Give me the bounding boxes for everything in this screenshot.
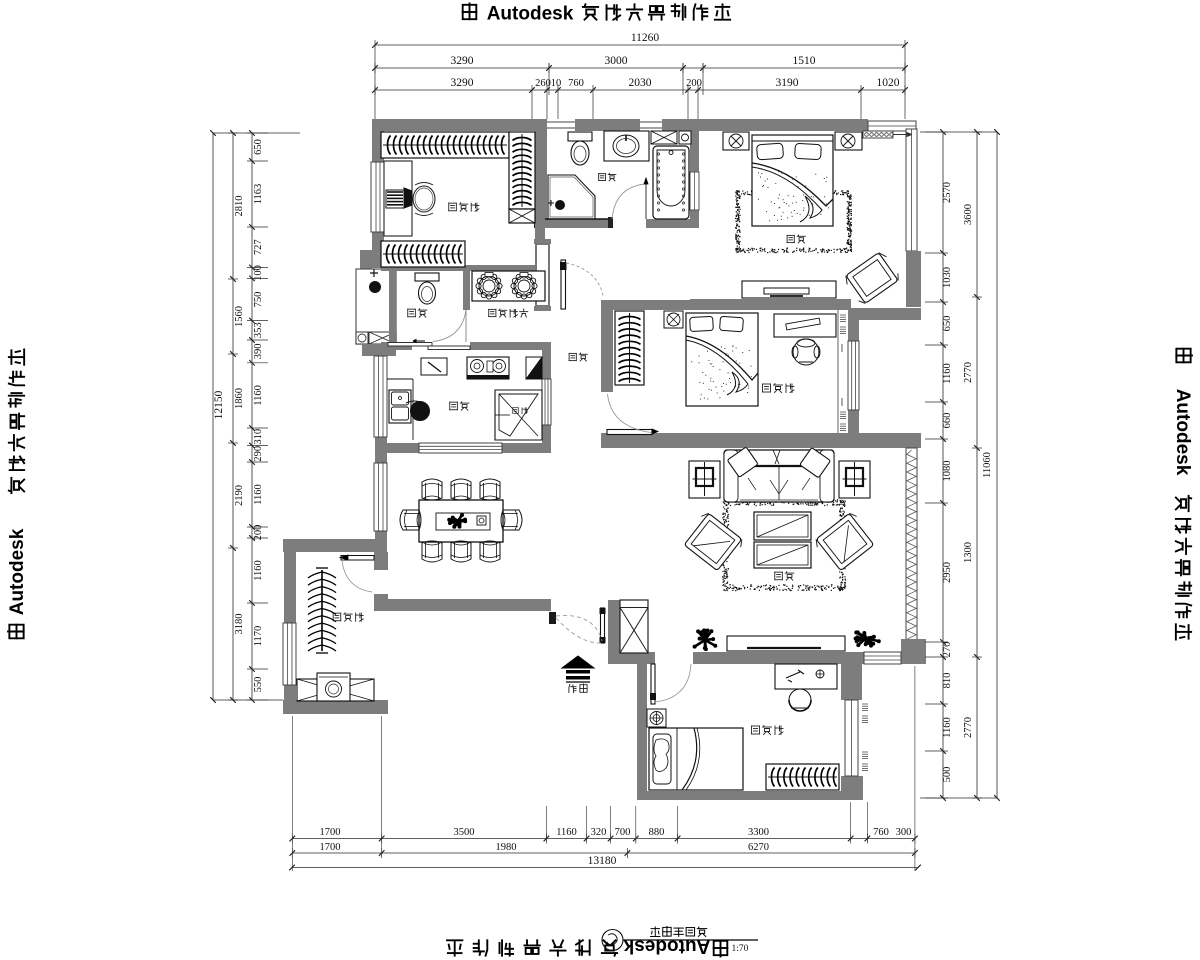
svg-text:6270: 6270 xyxy=(748,842,769,853)
svg-text:760: 760 xyxy=(873,827,889,838)
svg-text:2810: 2810 xyxy=(234,196,245,217)
svg-text:760: 760 xyxy=(568,78,584,89)
svg-text:200: 200 xyxy=(686,78,702,89)
svg-text:1163: 1163 xyxy=(253,184,264,205)
svg-text:3290: 3290 xyxy=(451,55,474,67)
svg-text:650: 650 xyxy=(942,316,953,332)
svg-text:3180: 3180 xyxy=(234,614,245,635)
svg-text:1030: 1030 xyxy=(942,267,953,288)
svg-text:1160: 1160 xyxy=(556,827,577,838)
svg-text:810: 810 xyxy=(942,673,953,689)
svg-text:Autodesk: Autodesk xyxy=(487,4,574,25)
svg-text:2570: 2570 xyxy=(942,182,953,203)
svg-text:1560: 1560 xyxy=(234,306,245,327)
svg-text:3500: 3500 xyxy=(454,827,475,838)
svg-text:390: 390 xyxy=(253,344,264,360)
svg-text:310: 310 xyxy=(253,429,264,445)
svg-text:Autodesk: Autodesk xyxy=(623,936,710,957)
svg-text:13180: 13180 xyxy=(588,855,617,867)
svg-text:1510: 1510 xyxy=(793,55,816,67)
svg-text:100: 100 xyxy=(253,265,264,281)
svg-text:270: 270 xyxy=(942,642,953,658)
svg-text:1160: 1160 xyxy=(942,717,953,738)
svg-text:11260: 11260 xyxy=(631,32,660,44)
svg-text:1160: 1160 xyxy=(253,560,264,581)
svg-text:1700: 1700 xyxy=(320,842,341,853)
svg-text:Autodesk: Autodesk xyxy=(7,528,28,615)
svg-text:1160: 1160 xyxy=(942,363,953,384)
svg-text:880: 880 xyxy=(649,827,665,838)
svg-text:550: 550 xyxy=(253,677,264,693)
svg-text:11060: 11060 xyxy=(982,452,993,478)
svg-text:650: 650 xyxy=(253,139,264,155)
svg-text:1300: 1300 xyxy=(963,542,974,563)
svg-text:2770: 2770 xyxy=(963,362,974,383)
svg-text:290: 290 xyxy=(253,446,264,462)
svg-text:1020: 1020 xyxy=(877,77,900,89)
svg-text:12150: 12150 xyxy=(213,390,225,419)
svg-text:353: 353 xyxy=(253,322,264,338)
svg-text:1980: 1980 xyxy=(496,842,517,853)
svg-text:3190: 3190 xyxy=(776,77,799,89)
svg-text:1700: 1700 xyxy=(320,827,341,838)
svg-text:727: 727 xyxy=(253,239,264,255)
svg-text:750: 750 xyxy=(253,292,264,308)
svg-text:200: 200 xyxy=(253,525,264,541)
svg-text:2190: 2190 xyxy=(234,485,245,506)
svg-text:320: 320 xyxy=(591,827,607,838)
svg-text:3600: 3600 xyxy=(963,204,974,225)
svg-text:3300: 3300 xyxy=(748,827,769,838)
svg-text:3000: 3000 xyxy=(605,55,628,67)
svg-text:700: 700 xyxy=(615,827,631,838)
svg-text:2030: 2030 xyxy=(629,77,652,89)
svg-text:2950: 2950 xyxy=(942,562,953,583)
svg-text:1860: 1860 xyxy=(234,388,245,409)
svg-text:300: 300 xyxy=(896,827,912,838)
svg-text:260: 260 xyxy=(535,78,551,89)
svg-text:3290: 3290 xyxy=(451,77,474,89)
svg-text:1080: 1080 xyxy=(942,461,953,482)
svg-text:2770: 2770 xyxy=(963,717,974,738)
svg-text:Autodesk: Autodesk xyxy=(1172,389,1193,476)
svg-text:1160: 1160 xyxy=(253,385,264,406)
svg-text:500: 500 xyxy=(942,767,953,783)
svg-text:1160: 1160 xyxy=(253,484,264,505)
svg-text:1170: 1170 xyxy=(253,626,264,647)
svg-text:660: 660 xyxy=(942,413,953,429)
svg-text:1:70: 1:70 xyxy=(732,944,749,954)
svg-text:10: 10 xyxy=(551,78,562,89)
